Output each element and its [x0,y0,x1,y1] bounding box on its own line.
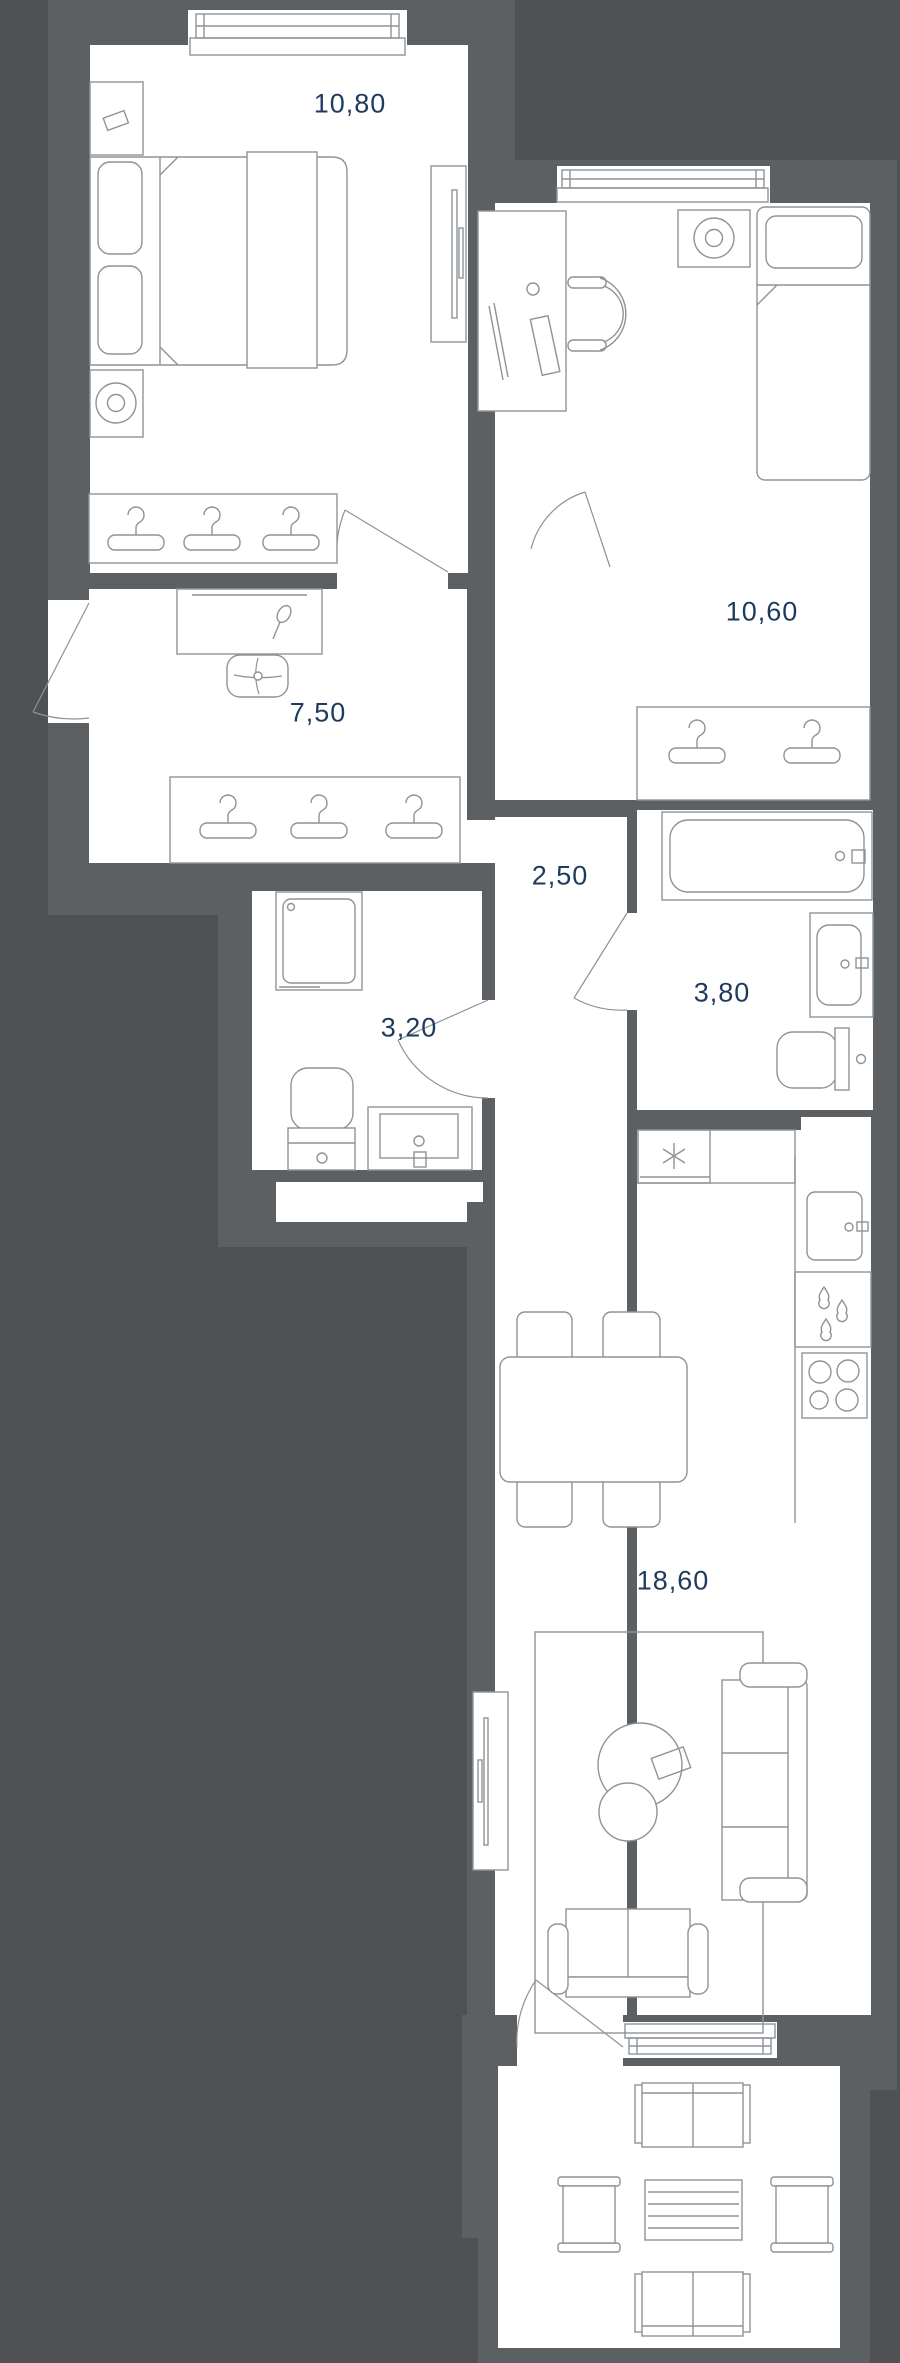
room-label-hallway: 7,50 [290,698,347,729]
single-bed-icon [757,207,870,480]
speaker-icon [90,370,143,437]
desk-icon [478,211,566,411]
dining-table-icon [500,1357,687,1482]
room-label-corridor: 2,50 [532,861,589,892]
sofa-icon [722,1663,807,1902]
bench-icon [635,2083,750,2147]
room-label-bathroom: 3,80 [694,978,751,1009]
chair-icon [603,1477,660,1527]
room-label-living-kitchen: 18,60 [637,1566,710,1597]
chair-icon [517,1477,572,1527]
stool-icon [227,655,288,697]
room-shower [252,891,482,1170]
dressing-table-icon [177,589,322,654]
speaker-icon [678,210,750,267]
tv-icon [431,166,466,342]
room-label-shower-room: 3,20 [381,1013,438,1044]
bench-icon [635,2272,750,2336]
balcony-chair-icon [771,2177,833,2252]
balcony-table-icon [645,2180,742,2240]
blanket-icon [247,152,317,368]
balcony-chair-icon [558,2177,620,2252]
bedroom2-wardrobe-icon [637,707,870,800]
loveseat-icon [548,1909,708,1997]
toilet-icon [288,1068,355,1170]
chair-icon [603,1312,660,1362]
closet [276,1182,483,1202]
floor-plan: 10,80 10,60 7,50 2,50 3,20 3,80 18,60 [0,0,900,2363]
hall-wardrobe-icon [170,777,460,863]
room-label-bedroom-1: 10,80 [314,89,387,120]
double-bed-icon [90,152,347,368]
room-label-bedroom-2: 10,60 [726,597,799,628]
floor-plan-svg [0,0,900,2363]
wardrobe-icon [89,494,337,563]
nightstand-icon [90,82,143,155]
tv-icon [473,1692,508,1870]
chair-icon [517,1312,572,1362]
